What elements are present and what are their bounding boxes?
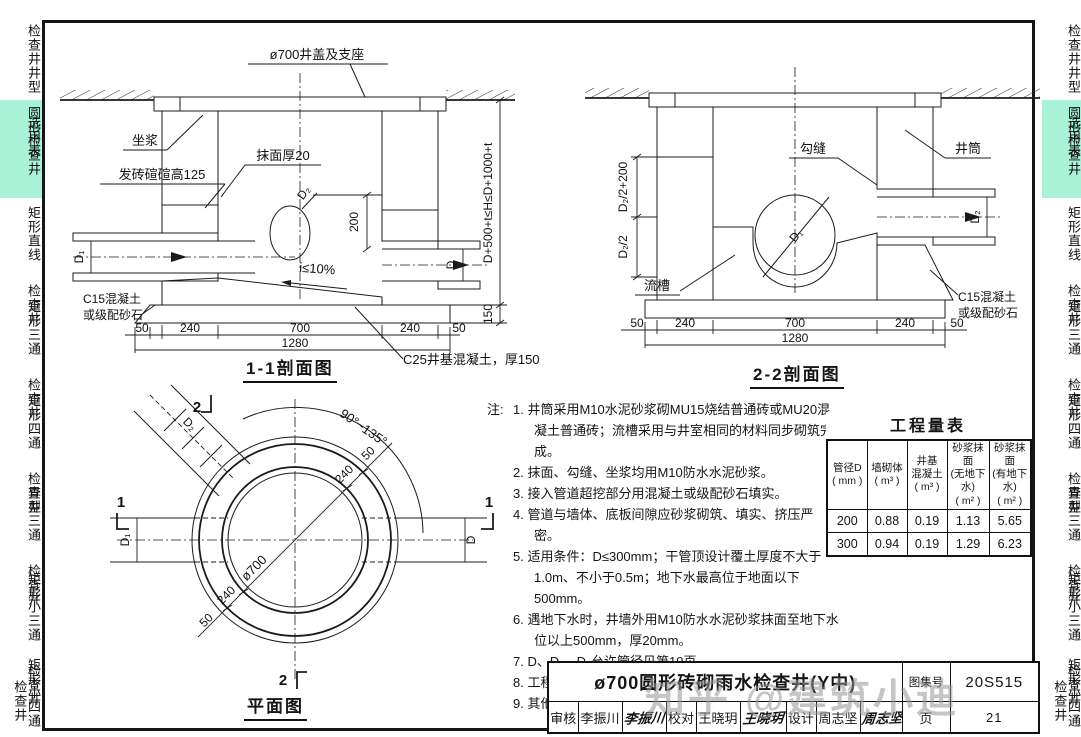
dim-chain-bottom: 50 240 700 240 50 1280 [125,321,466,353]
drawing-title: ø700圆形砖砌雨水检查井(Y中) [548,662,902,702]
note-item-4: 4. 管道与墙体、底板间隙应砂浆砌筑、填实、挤压严密。 [513,504,839,546]
atlas-number-value: 20S515 [950,662,1039,702]
title-block: ø700圆形砖砌雨水检查井(Y中) 图集号 20S515 审核 李振川 李振川 … [547,661,1038,734]
dim-h-label: D+500+t≤H≤D+1000+t [481,142,495,263]
sidebar-item-label: 检查井 [1052,658,1067,722]
c15-label-line2: 或级配砂石 [958,306,1018,320]
label-c25-leader: C25井基混凝土，厚150 [355,307,540,367]
c15-label-line2: 或级配砂石 [83,308,143,322]
quantity-table-header-row: 管径D ( mm ) 墙砌体 ( m³ ) 井基 混凝土 ( m³ ) 砂浆抹面… [827,440,1031,509]
jingtong-label: 井筒 [955,141,981,156]
dim-700: 700 [785,316,805,330]
cover-label: ø700井盖及支座 [270,47,365,62]
signature-text: 王晓玥 [742,706,785,727]
cut-mark-1-left: 1 [117,494,129,529]
sidebar-item-label: 矩形小三通 [1066,572,1081,642]
branch-opening-d2: D₂ [270,183,317,260]
sidebar-item-label: 异型三通 [26,486,41,542]
zuojiang-label: 坐浆 [132,133,158,148]
c25-label: C25井基混凝土，厚150 [403,352,540,367]
note-item-6: 6. 遇地下水时，井墙外用M10防水水泥砂浆抹面至地下水位以上500mm，厚20… [513,609,839,651]
pipe-d2-label: D₂ [968,210,982,224]
section-2-2-title: 2-2剖面图 [750,360,844,389]
designer-signature: 周志坚 [860,702,902,734]
sidebar-item-label: 矩形直线 [1066,206,1081,262]
proofread-label: 校对 [666,702,696,734]
label-jingtong-leader: 井筒 [905,130,991,158]
cell: 5.65 [989,509,1031,532]
title-block-row-title: ø700圆形砖砌雨水检查井(Y中) 图集号 20S515 [548,662,1039,702]
dim-d2-half: D₂/2 [616,235,630,259]
cell: 0.19 [907,532,947,556]
angle-arc: 90°~135° [243,406,423,533]
sidebar-item-label: 矩形小四通 [26,658,41,728]
dim-1280: 1280 [782,331,809,345]
note-item-5: 5. 适用条件：D≤300mm；干管顶设计覆土厚度不大于1.0m、不小于0.5m… [513,546,839,609]
dim-d2-half-200: D₂/2+200 [616,162,630,213]
sidebar-item-label: 异型三通 [1066,486,1081,542]
momian-label: 抹面厚20 [256,148,309,163]
label-c15-leader: C15混凝土 或级配砂石 [83,291,155,322]
proofreader-signature: 王晓玥 [740,702,786,734]
cell: 0.88 [867,509,907,532]
signature-text: 李振川 [623,706,666,727]
plan-d1-label: D₁ [118,534,132,547]
label-c15-leader: C15混凝土 或级配砂石 [930,270,1018,320]
page-label: 页 [902,702,950,734]
liucao-label: 流槽 [644,278,670,293]
sidebar-item-label: 圆形检查井 [26,106,41,176]
dim-depth-right: D+500+t≤H≤D+1000+t 150 [450,97,507,326]
c15-backfill-wedge [877,245,953,300]
cell: 0.94 [867,532,907,556]
note-item-3: 3. 接入管道超挖部分用混凝土或级配砂石填实。 [513,483,839,504]
section-1-1-drawing: D₁ D D₂ 200 i≤10% ø700井盖及支座 坐浆 [55,45,560,375]
sidebar-item-rect-small-cross-well: 矩形小四通检查井 [13,658,40,737]
dim-50-left: 50 [630,316,644,330]
dim-200: 200 [313,192,382,252]
dim-chain-bottom: 50 240 700 240 50 1280 [621,316,967,348]
sloped-floor [162,278,382,305]
angle-label: 90°~135° [337,406,390,449]
proofreader-name: 王晓玥 [696,702,740,734]
outlet-pipe-d: D [382,241,487,289]
table-row: 200 0.88 0.19 1.13 5.65 [827,509,1031,532]
label-liucao-leader: 流槽 [635,255,735,295]
col-header-pipe-dia: 管径D ( mm ) [827,440,867,509]
design-label: 设计 [786,702,816,734]
sidebar-item-label: 检查井 [12,658,27,722]
ground-surface [60,90,515,100]
label-cover-leader: ø700井盖及支座 [248,47,388,97]
col-header-plaster-no-gw: 砂浆抹面 (无地下水) ( m² ) [947,440,989,509]
plan-d-label: D [464,535,478,544]
cell: 6.23 [989,532,1031,556]
dim-240-right: 240 [895,316,915,330]
col-header-base-concrete: 井基 混凝土 ( m³ ) [907,440,947,509]
atlas-page: { "page": { "watermark": "知乎 @建筑小迪" }, "… [0,0,1081,737]
title-block-table: ø700圆形砖砌雨水检查井(Y中) 图集号 20S515 审核 李振川 李振川 … [547,661,1040,734]
cell: 0.19 [907,509,947,532]
designer-name: 周志坚 [816,702,860,734]
dim-700: 700 [290,321,310,335]
quantity-table: 管径D ( mm ) 墙砌体 ( m³ ) 井基 混凝土 ( m³ ) 砂浆抹面… [826,439,1032,557]
pipe-d1-label: D₁ [72,251,86,264]
note-item-2: 2. 抹面、勾缝、坐浆均用M10防水水泥砂浆。 [513,462,839,483]
dim-50-right: 50 [950,316,964,330]
reviewer-name: 李振川 [578,702,622,734]
dim-240-left: 240 [180,321,200,335]
c15-label-line1: C15混凝土 [958,289,1016,304]
cell: 1.13 [947,509,989,532]
sidebar-left: 检查井井型选用表 圆形检查井 矩形直线检查井 矩形三通检查井 矩形四通检查井 异… [0,0,42,737]
sidebar-item-label: 检查井井型 [1066,24,1081,94]
cut-mark-2-bottom: 2 [279,672,307,689]
sidebar-item-label: 矩形四通 [26,394,41,450]
dim-240-left: 240 [675,316,695,330]
slope-annotation: i≤10% [281,260,347,289]
dim-50-left: 50 [135,321,149,335]
sidebar-item-circular-well: 圆形检查井 [26,106,40,176]
sidebar-item-label: 矩形三通 [1066,300,1081,356]
table-row: 300 0.94 0.19 1.29 6.23 [827,532,1031,556]
plan-dim-50-bl: 50 [196,610,216,630]
fazhuan-label: 发砖碹碹高125 [119,167,206,182]
dim-150-label: 150 [481,304,495,324]
plan-view-drawing: D₁ D D₂ 50 240 240 50 ø700 90°~135° [95,385,505,690]
reviewer-signature: 李振川 [622,702,666,734]
atlas-number-label: 图集号 [902,662,950,702]
cell: 1.29 [947,532,989,556]
sidebar-right: 检查井井型选用表 圆形检查井 矩形直线检查井 矩形三通检查井 矩形四通检查井 异… [1042,0,1081,737]
plan-view-title: 平面图 [244,692,307,721]
quantity-table-title: 工程量表 [826,412,1030,436]
c15-label-line1: C15混凝土 [83,291,141,306]
sidebar-item-label: 矩形四通 [1066,394,1081,450]
note-item-1: 1. 井筒采用M10水泥砂浆砌MU15烧结普通砖或MU20混凝土普通砖；流槽采用… [513,399,839,462]
sidebar-item-circular-well: 圆形检查井 [1066,106,1080,176]
notes-prefix: 注: [487,399,504,420]
goufeng-label: 勾缝 [800,141,826,156]
plan-dim-240-bl: 240 [214,583,238,607]
sidebar-item-label: 矩形三通 [26,300,41,356]
outlet-pipe-d2: D₂ [877,189,1003,245]
section-1-1-title: 1-1剖面图 [243,354,337,383]
dim-240-right: 240 [400,321,420,335]
dim-200-label: 200 [347,212,361,232]
label-zuojiang-leader: 坐浆 [123,115,203,150]
review-label: 审核 [548,702,578,734]
cell: 200 [827,509,867,532]
pipe-d-label: D [444,260,458,269]
page-number: 21 [950,702,1039,734]
signature-text: 周志坚 [860,706,902,727]
col-header-masonry: 墙砌体 ( m³ ) [867,440,907,509]
sidebar-item-label: 矩形小四通 [1066,658,1081,728]
slope-label: i≤10% [299,260,336,278]
cut-2-bottom-label: 2 [279,672,287,689]
inlet-pipe-d1: D₁ [72,233,295,281]
quantity-table-block: 工程量表 管径D ( mm ) 墙砌体 ( m³ ) 井基 混凝土 ( m³ )… [826,412,1030,557]
col-header-plaster-gw: 砂浆抹面 (有地下水) ( m² ) [989,440,1031,509]
title-block-row-signatures: 审核 李振川 李振川 校对 王晓玥 王晓玥 设计 周志坚 周志坚 页 21 [548,702,1039,734]
section-2-2-drawing: D₁ D₂ 勾缝 井筒 流槽 C15混凝土 或级配砂石 [585,45,1040,365]
cut-1-left-label: 1 [117,494,125,511]
dim-1280: 1280 [282,336,309,350]
cut-2-top-label: 2 [193,399,201,416]
cut-mark-2-top: 2 [193,395,211,416]
plan-d2-label: D₂ [180,415,200,435]
label-goufeng-leader: 勾缝 [789,141,877,185]
cell: 300 [827,532,867,556]
sidebar-item-label: 矩形小三通 [26,572,41,642]
sidebar-item-rect-small-cross-well: 矩形小四通检查井 [1053,658,1080,737]
sidebar-item-label: 矩形直线 [26,206,41,262]
dim-left-vertical: D₂/2+200 D₂/2 [616,154,713,280]
sidebar-item-label: 圆形检查井 [1066,106,1081,176]
plan-dia-700-label: ø700 [238,552,270,584]
sidebar-item-label: 检查井井型 [26,24,41,94]
